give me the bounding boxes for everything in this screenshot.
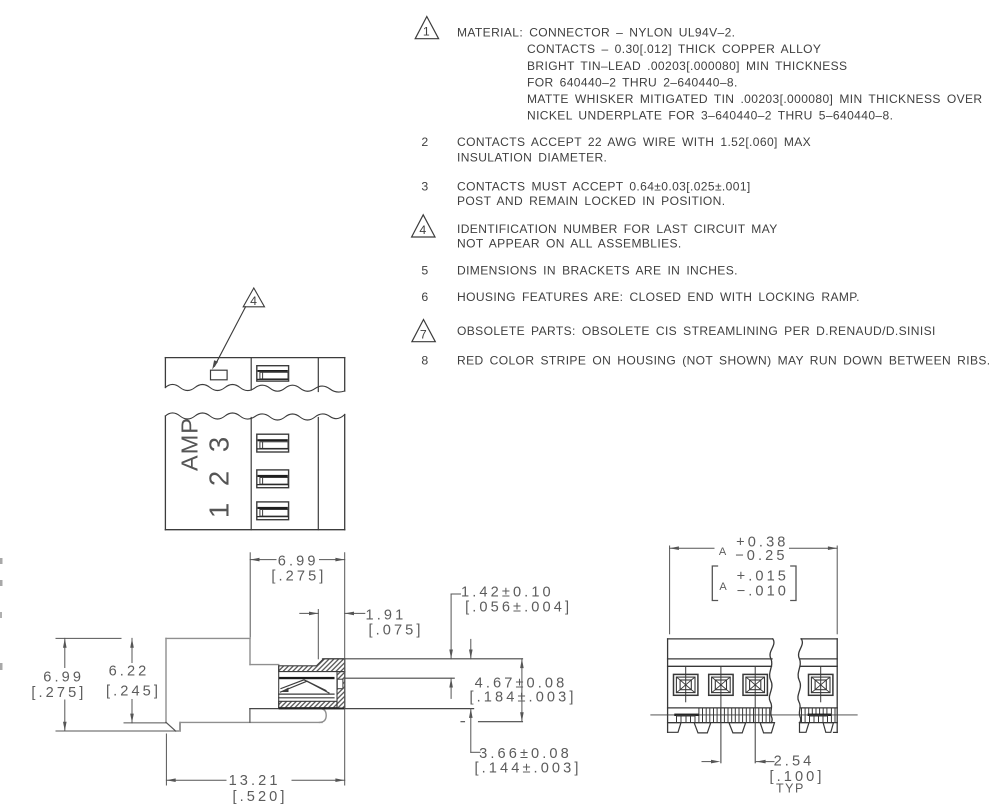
svg-text:FOR 640440–2 THRU 2–640440–8.: FOR 640440–2 THRU 2–640440–8. — [527, 75, 738, 89]
svg-text:TYP: TYP — [776, 782, 805, 796]
svg-text:[.075]: [.075] — [368, 623, 423, 639]
svg-text:[.144±.003]: [.144±.003] — [474, 760, 581, 776]
svg-text:[.056±.004]: [.056±.004] — [465, 600, 572, 616]
svg-text:1.42±0.10: 1.42±0.10 — [461, 585, 554, 601]
svg-text:13.21: 13.21 — [229, 773, 281, 789]
svg-text:INSULATION DIAMETER.: INSULATION DIAMETER. — [457, 150, 607, 164]
svg-text:[.520]: [.520] — [232, 789, 287, 805]
svg-text:3: 3 — [421, 180, 428, 194]
svg-text:CONTACTS ACCEPT 22 AWG WIRE WI: CONTACTS ACCEPT 22 AWG WIRE WITH 1.52[.0… — [457, 135, 811, 149]
svg-text:A: A — [719, 546, 727, 558]
svg-text:5: 5 — [421, 264, 428, 278]
svg-text:NICKEL UNDERPLATE FOR 3–640440: NICKEL UNDERPLATE FOR 3–640440–2 THRU 5–… — [527, 109, 893, 123]
svg-text:BRIGHT TIN–LEAD .00203[.000080: BRIGHT TIN–LEAD .00203[.000080] MIN THIC… — [527, 59, 847, 73]
svg-text:4: 4 — [419, 223, 426, 237]
svg-text:CONTACTS – 0.30[.012] THICK CO: CONTACTS – 0.30[.012] THICK COPPER ALLOY — [527, 42, 821, 56]
svg-text:CONTACTS MUST ACCEPT 0.64±0.03: CONTACTS MUST ACCEPT 0.64±0.03[.025±.001… — [457, 180, 751, 194]
svg-text:1: 1 — [423, 25, 430, 39]
svg-text:MATERIAL: CONNECTOR – NYLON UL: MATERIAL: CONNECTOR – NYLON UL94V–2. — [457, 26, 735, 40]
svg-text:NOT APPEAR ON ALL ASSEMBLIES.: NOT APPEAR ON ALL ASSEMBLIES. — [457, 237, 682, 251]
svg-text:+.015: +.015 — [737, 568, 789, 584]
svg-text:AMP: AMP — [177, 417, 203, 471]
svg-text:2.54: 2.54 — [774, 753, 815, 769]
svg-text:IDENTIFICATION NUMBER FOR LAST: IDENTIFICATION NUMBER FOR LAST CIRCUIT M… — [457, 222, 778, 236]
svg-text:−0.25: −0.25 — [735, 548, 787, 564]
svg-text:−.010: −.010 — [737, 583, 789, 599]
svg-text:HOUSING FEATURES ARE: CLOSED E: HOUSING FEATURES ARE: CLOSED END WITH LO… — [457, 290, 860, 304]
svg-text:4: 4 — [250, 294, 257, 308]
svg-text:7: 7 — [420, 328, 427, 342]
svg-text:MATTE WHISKER MITIGATED TIN .0: MATTE WHISKER MITIGATED TIN .00203[.0000… — [527, 92, 983, 106]
svg-text:DIMENSIONS IN BRACKETS ARE IN: DIMENSIONS IN BRACKETS ARE IN INCHES. — [457, 264, 738, 278]
svg-text:2: 2 — [421, 135, 428, 149]
svg-text:1: 1 — [204, 502, 235, 518]
svg-text:6.99: 6.99 — [278, 553, 319, 569]
svg-text:[.275]: [.275] — [271, 569, 326, 585]
svg-text:RED COLOR STRIPE ON HOUSING (N: RED COLOR STRIPE ON HOUSING (NOT SHOWN) … — [457, 354, 991, 368]
svg-text:A: A — [719, 581, 727, 593]
svg-text:6: 6 — [421, 290, 428, 304]
svg-text:POST AND REMAIN LOCKED IN POSI: POST AND REMAIN LOCKED IN POSITION. — [457, 194, 726, 208]
svg-text:[.184±.003]: [.184±.003] — [469, 689, 576, 705]
svg-text:6.22: 6.22 — [109, 663, 150, 679]
svg-text:3: 3 — [204, 436, 235, 452]
svg-text:[.245]: [.245] — [106, 684, 161, 700]
svg-text:2: 2 — [204, 470, 235, 486]
svg-text:1.91: 1.91 — [365, 608, 406, 624]
svg-text:OBSOLETE PARTS: OBSOLETE CIS S: OBSOLETE PARTS: OBSOLETE CIS STREAMLININ… — [457, 324, 936, 338]
svg-text:[.275]: [.275] — [31, 685, 86, 701]
svg-text:8: 8 — [421, 354, 428, 368]
svg-text:6.99: 6.99 — [43, 669, 84, 685]
